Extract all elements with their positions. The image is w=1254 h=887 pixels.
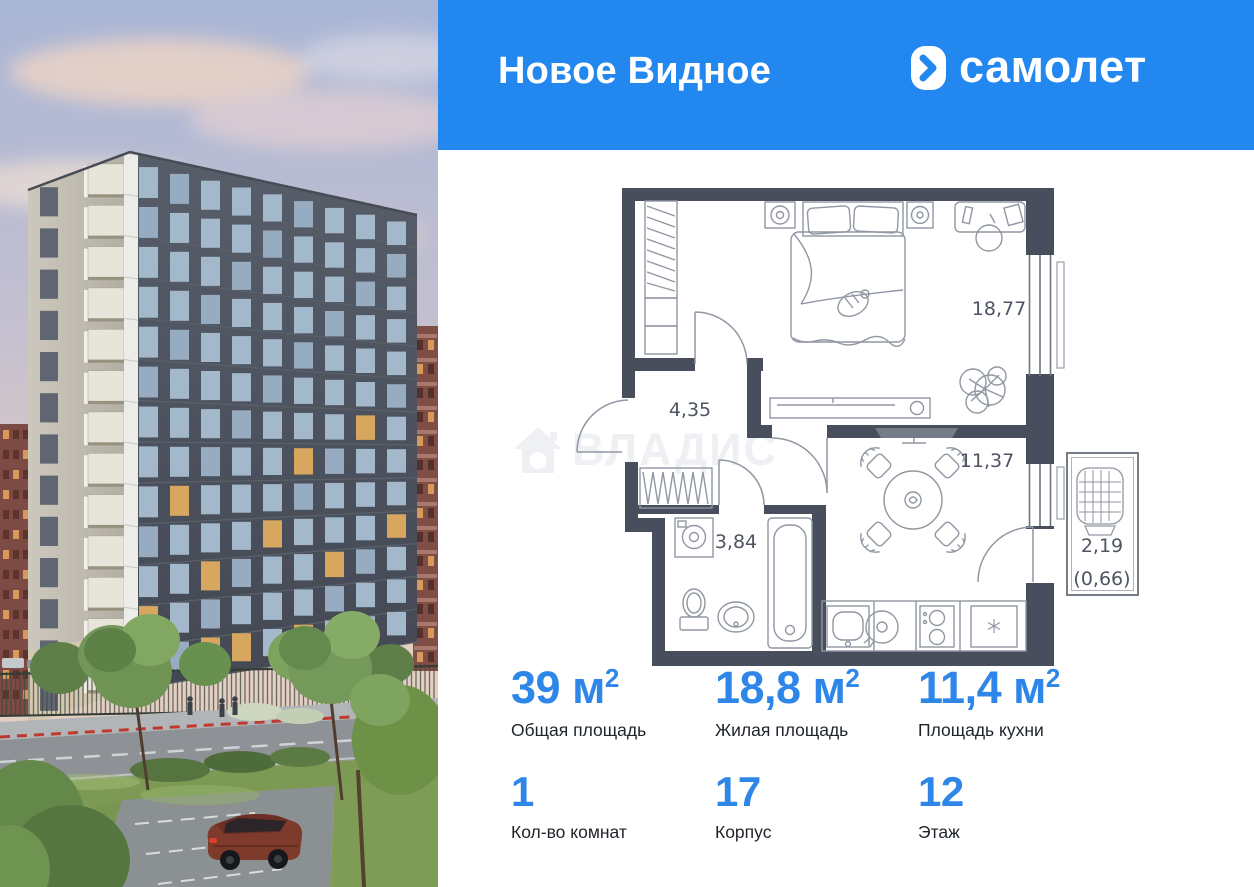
page: { "header": { "project_title": "Новое Ви…: [0, 0, 1254, 887]
tv-stand: [902, 438, 926, 443]
room-area-label-balcony-reduced: (0,66): [1073, 568, 1130, 590]
header: Новое Видное самолет: [438, 0, 1254, 150]
samolet-arrow-icon: [911, 46, 946, 90]
bathtub: [768, 518, 812, 648]
room-area-label-bedroom: 18,77: [972, 298, 1026, 320]
room-area-label-kitchen: 11,37: [960, 450, 1014, 472]
stat-kitchen-area: 11,4 м2 Площадь кухни: [918, 666, 1060, 741]
bathroom-door: [719, 460, 764, 505]
stat-label: Жилая площадь: [715, 720, 859, 741]
stat-label: Площадь кухни: [918, 720, 1060, 741]
walls: [622, 188, 1054, 666]
room-area-label-hallway: 4,35: [669, 399, 711, 421]
kitchen-counter: [822, 601, 1026, 651]
bedroom-door: [695, 312, 747, 364]
window-sill: [1057, 262, 1064, 368]
house-icon: [512, 424, 564, 476]
room-area-label-balcony: 2,19: [1081, 535, 1123, 557]
tv: [875, 428, 958, 438]
bathroom-sink: [718, 602, 754, 632]
desk: [955, 202, 1025, 251]
toilet: [680, 589, 708, 630]
cat: [834, 287, 873, 321]
stat-living-area: 18,8 м2 Жилая площадь: [715, 666, 859, 741]
building-photo: [0, 0, 438, 887]
coat-rack: [640, 468, 712, 508]
samolet-logo: самолет: [911, 46, 1147, 90]
room-area-label-bathroom: 3,84: [715, 531, 757, 553]
stat-rooms: 1 Кол-во комнат: [511, 772, 627, 843]
stat-label: Кол-во комнат: [511, 822, 627, 843]
kitchen-sink: [866, 611, 898, 643]
tv-console: [770, 398, 930, 418]
stat-label: Общая площадь: [511, 720, 646, 741]
stat-label: Корпус: [715, 822, 771, 843]
window-sill: [1057, 467, 1064, 519]
balcony-door: [978, 527, 1033, 582]
plant: [960, 367, 1006, 413]
bed: [765, 202, 933, 346]
washing-machine: [675, 518, 713, 557]
wardrobe: [645, 201, 677, 354]
floor-plan: 18,77 4,35 3,84 11,37 2,19 (0,66): [565, 186, 1140, 666]
project-title: Новое Видное: [498, 50, 771, 93]
stat-total-area: 39 м2 Общая площадь: [511, 666, 646, 741]
desk-chair: [976, 225, 1002, 251]
stat-floor: 12 Этаж: [918, 772, 964, 843]
dining-table: [856, 443, 971, 558]
samolet-logo-text: самолет: [959, 44, 1147, 89]
balcony-chair: [1077, 468, 1123, 524]
stat-building: 17 Корпус: [715, 772, 771, 843]
kitchen-door: [772, 438, 827, 493]
entry-door: [577, 400, 628, 452]
stat-label: Этаж: [918, 822, 964, 843]
